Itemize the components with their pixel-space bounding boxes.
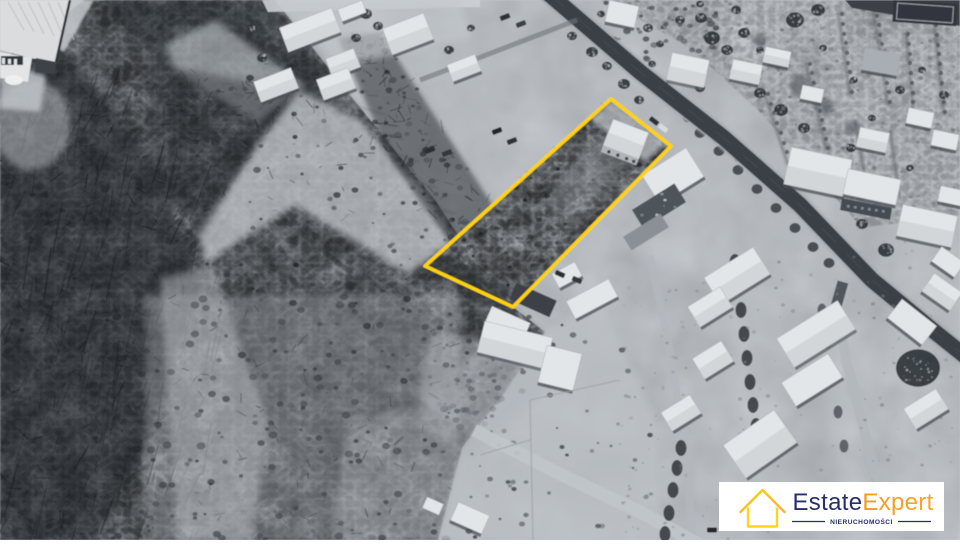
svg-text:NIERUCHOMOŚCI: NIERUCHOMOŚCI — [830, 517, 893, 526]
svg-text:EstateExpert: EstateExpert — [793, 489, 934, 516]
